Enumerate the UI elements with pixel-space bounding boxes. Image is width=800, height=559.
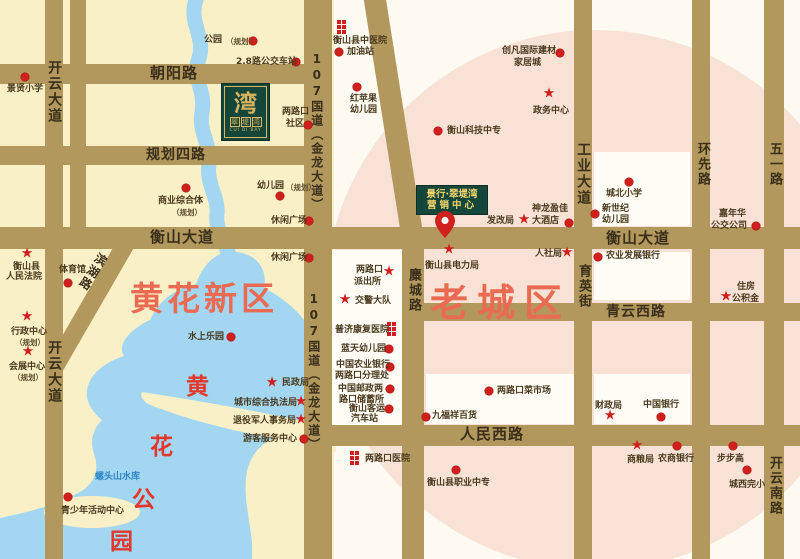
poi-label: 两路口分理处 bbox=[335, 371, 389, 381]
location-map: 黄花新区 老城区 螺头山水库 湾 翠堤湾 CUI DI BAY 景行·翠堤湾 营… bbox=[0, 0, 800, 559]
poi-marker-dot bbox=[434, 127, 443, 136]
poi-marker-dot bbox=[485, 387, 494, 396]
poi-label: 社区 bbox=[286, 119, 304, 129]
poi-marker-dot bbox=[227, 333, 236, 342]
poi-label: 神龙盈佳 bbox=[532, 204, 568, 214]
project-logo: 湾 翠堤湾 CUI DI BAY bbox=[221, 83, 270, 141]
poi-marker-dot bbox=[452, 466, 461, 475]
poi-label: 青少年活动中心 bbox=[61, 506, 124, 516]
poi-marker-star: ★ bbox=[295, 412, 308, 426]
poi-label: 休闲广场 bbox=[271, 253, 307, 263]
poi-label: 红苹果 bbox=[350, 94, 377, 104]
poi-label: 行政中心 bbox=[11, 327, 47, 337]
poi-label: 两路口医院 bbox=[365, 454, 410, 464]
poi-marker-dot bbox=[743, 466, 752, 475]
poi-label: 商业综合体 bbox=[158, 196, 203, 206]
road-bar bbox=[70, 0, 86, 248]
poi-label: 住房 bbox=[737, 282, 755, 292]
poi-label: 幼儿园 bbox=[350, 105, 377, 115]
poi-marker-dot bbox=[657, 413, 666, 422]
poi-marker-star: ★ bbox=[21, 246, 34, 260]
poi-label: 幼儿园 bbox=[602, 215, 629, 225]
poi-label: 两路口菜市场 bbox=[497, 386, 551, 396]
marketing-center-line1: 景行·翠堤湾 bbox=[426, 189, 477, 200]
poi-label: 人社局 bbox=[535, 249, 562, 259]
logo-name-char: 堤 bbox=[241, 117, 251, 127]
poi-label: 人民法院 bbox=[6, 272, 42, 282]
poi-label: 普济康复医院 bbox=[335, 325, 389, 335]
poi-marker-star: ★ bbox=[631, 438, 644, 452]
road-label: 开云大道 bbox=[46, 60, 62, 124]
poi-label: （规划） bbox=[286, 183, 316, 193]
poi-label: 新世纪 bbox=[602, 204, 629, 214]
poi-label: 发改局 bbox=[487, 216, 514, 226]
poi-marker-dot bbox=[422, 413, 431, 422]
road-label: 人民西路 bbox=[460, 426, 524, 443]
road-label: 环先路 bbox=[694, 142, 709, 187]
poi-marker-star: ★ bbox=[266, 375, 279, 389]
location-pin-icon bbox=[435, 211, 455, 238]
poi-label: （规划） bbox=[15, 338, 45, 348]
poi-marker-star: ★ bbox=[383, 264, 396, 278]
poi-marker-hospital bbox=[337, 20, 346, 34]
poi-label: 退役军人事务局 bbox=[233, 416, 296, 426]
park-label-char: 园 bbox=[110, 522, 133, 556]
road-label: 开云南路 bbox=[766, 456, 781, 516]
poi-label: 中国邮政两 bbox=[338, 384, 383, 394]
road-bar bbox=[692, 0, 710, 559]
poi-label: 农商银行 bbox=[658, 454, 694, 464]
road-label: 青云西路 bbox=[606, 304, 666, 320]
poi-label: 中国银行 bbox=[643, 400, 679, 410]
poi-label: 政务中心 bbox=[533, 106, 569, 116]
park-label-char: 黄 bbox=[186, 367, 209, 401]
poi-label: （规划） bbox=[13, 373, 43, 383]
poi-label: 游客服务中心 bbox=[243, 434, 297, 444]
poi-marker-star: ★ bbox=[518, 212, 531, 226]
logo-latin-name: CUI DI BAY bbox=[230, 128, 262, 133]
poi-label: 体育馆 bbox=[59, 265, 86, 275]
poi-marker-dot bbox=[64, 493, 73, 502]
poi-label: 民政局 bbox=[282, 378, 309, 388]
poi-label: 加油站 bbox=[347, 47, 374, 57]
poi-label: 衡山县中医院 bbox=[333, 36, 387, 46]
logo-name-char: 湾 bbox=[252, 117, 262, 127]
poi-marker-star: ★ bbox=[443, 242, 456, 256]
poi-label: 休闲广场 bbox=[271, 216, 307, 226]
poi-marker-dot bbox=[64, 279, 73, 288]
poi-marker-dot bbox=[182, 184, 191, 193]
poi-label: 商粮局 bbox=[627, 455, 654, 465]
road-label: 衡山大道 bbox=[606, 230, 670, 247]
poi-marker-dot bbox=[386, 385, 395, 394]
poi-marker-hospital bbox=[350, 451, 359, 465]
poi-label: 水上乐园 bbox=[188, 332, 224, 342]
road-label: 麋城路 bbox=[405, 268, 420, 313]
poi-label: （规划） bbox=[226, 37, 256, 47]
poi-label: 步步高 bbox=[717, 454, 744, 464]
region-label-new-district: 黄花新区 bbox=[130, 272, 278, 320]
road-label: 衡山大道 bbox=[150, 229, 214, 246]
road-label: 朝阳路 bbox=[150, 65, 198, 82]
poi-label: 中国农业银行 bbox=[336, 360, 390, 370]
road-bar bbox=[304, 425, 800, 446]
poi-label: 幼儿园 bbox=[257, 181, 284, 191]
poi-marker-dot bbox=[304, 121, 313, 130]
poi-label: 衡山县 bbox=[13, 262, 40, 272]
poi-label: 蓝天幼儿园 bbox=[341, 344, 386, 354]
poi-marker-dot bbox=[591, 210, 600, 219]
poi-label: 城西完小 bbox=[729, 480, 765, 490]
poi-label: 景贤小学 bbox=[7, 84, 43, 94]
poi-label: 公交公司 bbox=[711, 221, 747, 231]
poi-marker-dot bbox=[565, 219, 574, 228]
poi-marker-dot bbox=[752, 222, 761, 231]
poi-marker-star: ★ bbox=[21, 309, 34, 323]
region-label-old-town: 老城区 bbox=[430, 272, 571, 327]
poi-label: 创凡国际建材 bbox=[502, 46, 556, 56]
poi-label: 大酒店 bbox=[532, 216, 559, 226]
logo-name: 翠堤湾 bbox=[230, 117, 262, 127]
poi-label: 2.8路公交车站 bbox=[236, 57, 297, 67]
road-label: 五一路 bbox=[766, 142, 781, 187]
poi-label: 农业发展银行 bbox=[606, 251, 660, 261]
poi-label: 九福祥百货 bbox=[432, 411, 477, 421]
poi-label: 家居城 bbox=[514, 58, 541, 68]
poi-marker-star: ★ bbox=[543, 86, 556, 100]
poi-marker-dot bbox=[556, 49, 565, 58]
poi-label: 交警大队 bbox=[355, 296, 391, 306]
poi-marker-dot bbox=[21, 73, 30, 82]
poi-marker-star: ★ bbox=[720, 289, 733, 303]
poi-label: 财政局 bbox=[595, 401, 622, 411]
logo-bay-character: 湾 bbox=[234, 92, 257, 116]
poi-label: 两路口 bbox=[356, 265, 383, 275]
poi-label: 衡山科技中专 bbox=[447, 126, 501, 136]
poi-marker-star: ★ bbox=[339, 292, 352, 306]
poi-label: 城北小学 bbox=[606, 189, 642, 199]
poi-label: 公积金 bbox=[732, 294, 759, 304]
poi-label: 汽车站 bbox=[351, 414, 378, 424]
poi-marker-dot bbox=[385, 405, 394, 414]
road-label: 规划四路 bbox=[146, 147, 206, 163]
poi-label: 两路口 bbox=[282, 107, 309, 117]
poi-label: 公园 bbox=[204, 35, 222, 45]
poi-marker-dot bbox=[729, 442, 738, 451]
park-label-char: 花 bbox=[150, 427, 173, 461]
poi-label: （规划） bbox=[172, 208, 202, 218]
logo-name-char: 翠 bbox=[230, 117, 240, 127]
road-label: 开云大道 bbox=[46, 340, 62, 404]
poi-marker-dot bbox=[300, 435, 309, 444]
poi-marker-star: ★ bbox=[561, 245, 574, 259]
road-label: 107国道（金龙大道） bbox=[306, 292, 320, 452]
poi-label: 衡山县职业中专 bbox=[427, 478, 490, 488]
poi-marker-dot bbox=[594, 253, 603, 262]
road-label: 工业大道 bbox=[575, 142, 591, 206]
road-label: 育英街 bbox=[575, 264, 590, 309]
poi-marker-dot bbox=[625, 178, 634, 187]
poi-label: 派出所 bbox=[354, 277, 381, 287]
poi-label: 衡山县电力局 bbox=[425, 261, 479, 271]
poi-label: 衡山客运 bbox=[349, 404, 385, 414]
park-label-char: 公 bbox=[132, 480, 155, 514]
poi-label: 城市综合执法局 bbox=[234, 398, 297, 408]
poi-label: 嘉年华 bbox=[719, 209, 746, 219]
marketing-center-line2: 营销中心 bbox=[427, 200, 477, 211]
poi-marker-dot bbox=[335, 48, 344, 57]
poi-marker-dot bbox=[353, 83, 362, 92]
poi-marker-dot bbox=[673, 442, 682, 451]
poi-label: 会展中心 bbox=[9, 362, 45, 372]
poi-marker-dot bbox=[276, 192, 285, 201]
